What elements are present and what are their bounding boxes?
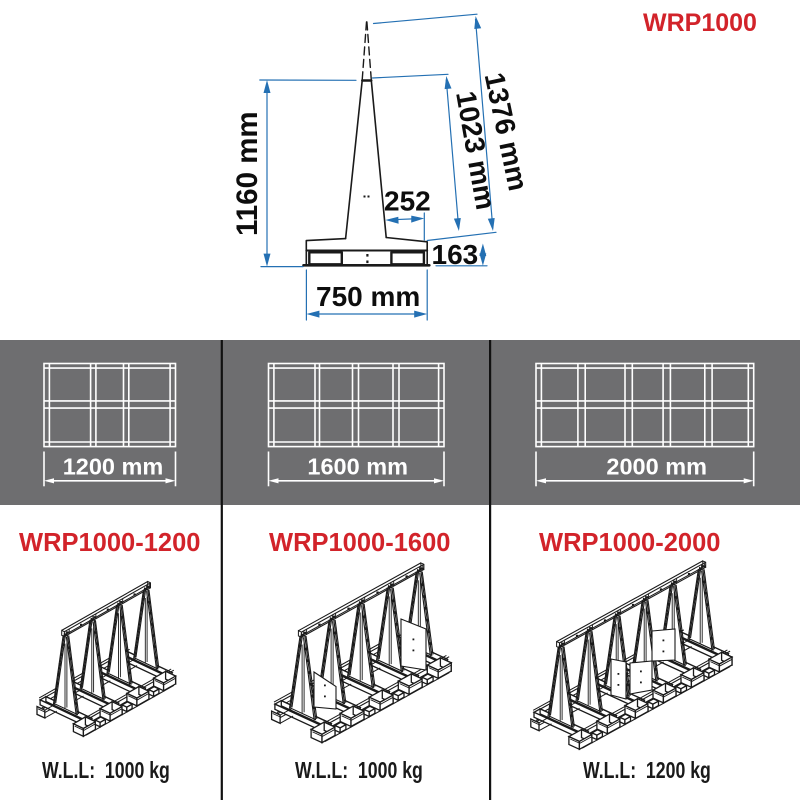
svg-text:W.L.L: 1000 kg: W.L.L: 1000 kg	[295, 758, 423, 784]
svg-text:252: 252	[384, 186, 431, 217]
svg-text:1200 mm: 1200 mm	[63, 454, 164, 480]
svg-text:WRP1000: WRP1000	[643, 9, 757, 37]
svg-text:1160 mm: 1160 mm	[231, 111, 264, 236]
svg-text:750 mm: 750 mm	[316, 281, 420, 312]
svg-text:W.L.L: 1000 kg: W.L.L: 1000 kg	[42, 758, 170, 784]
svg-text:WRP1000-1200: WRP1000-1200	[19, 529, 200, 557]
svg-text:WRP1000-1600: WRP1000-1600	[269, 529, 450, 557]
svg-text:WRP1000-2000: WRP1000-2000	[539, 529, 720, 557]
svg-text:1600 mm: 1600 mm	[307, 454, 408, 480]
svg-text:2000 mm: 2000 mm	[606, 454, 707, 480]
svg-text:163: 163	[432, 239, 479, 270]
svg-text:W.L.L: 1200 kg: W.L.L: 1200 kg	[583, 758, 711, 784]
